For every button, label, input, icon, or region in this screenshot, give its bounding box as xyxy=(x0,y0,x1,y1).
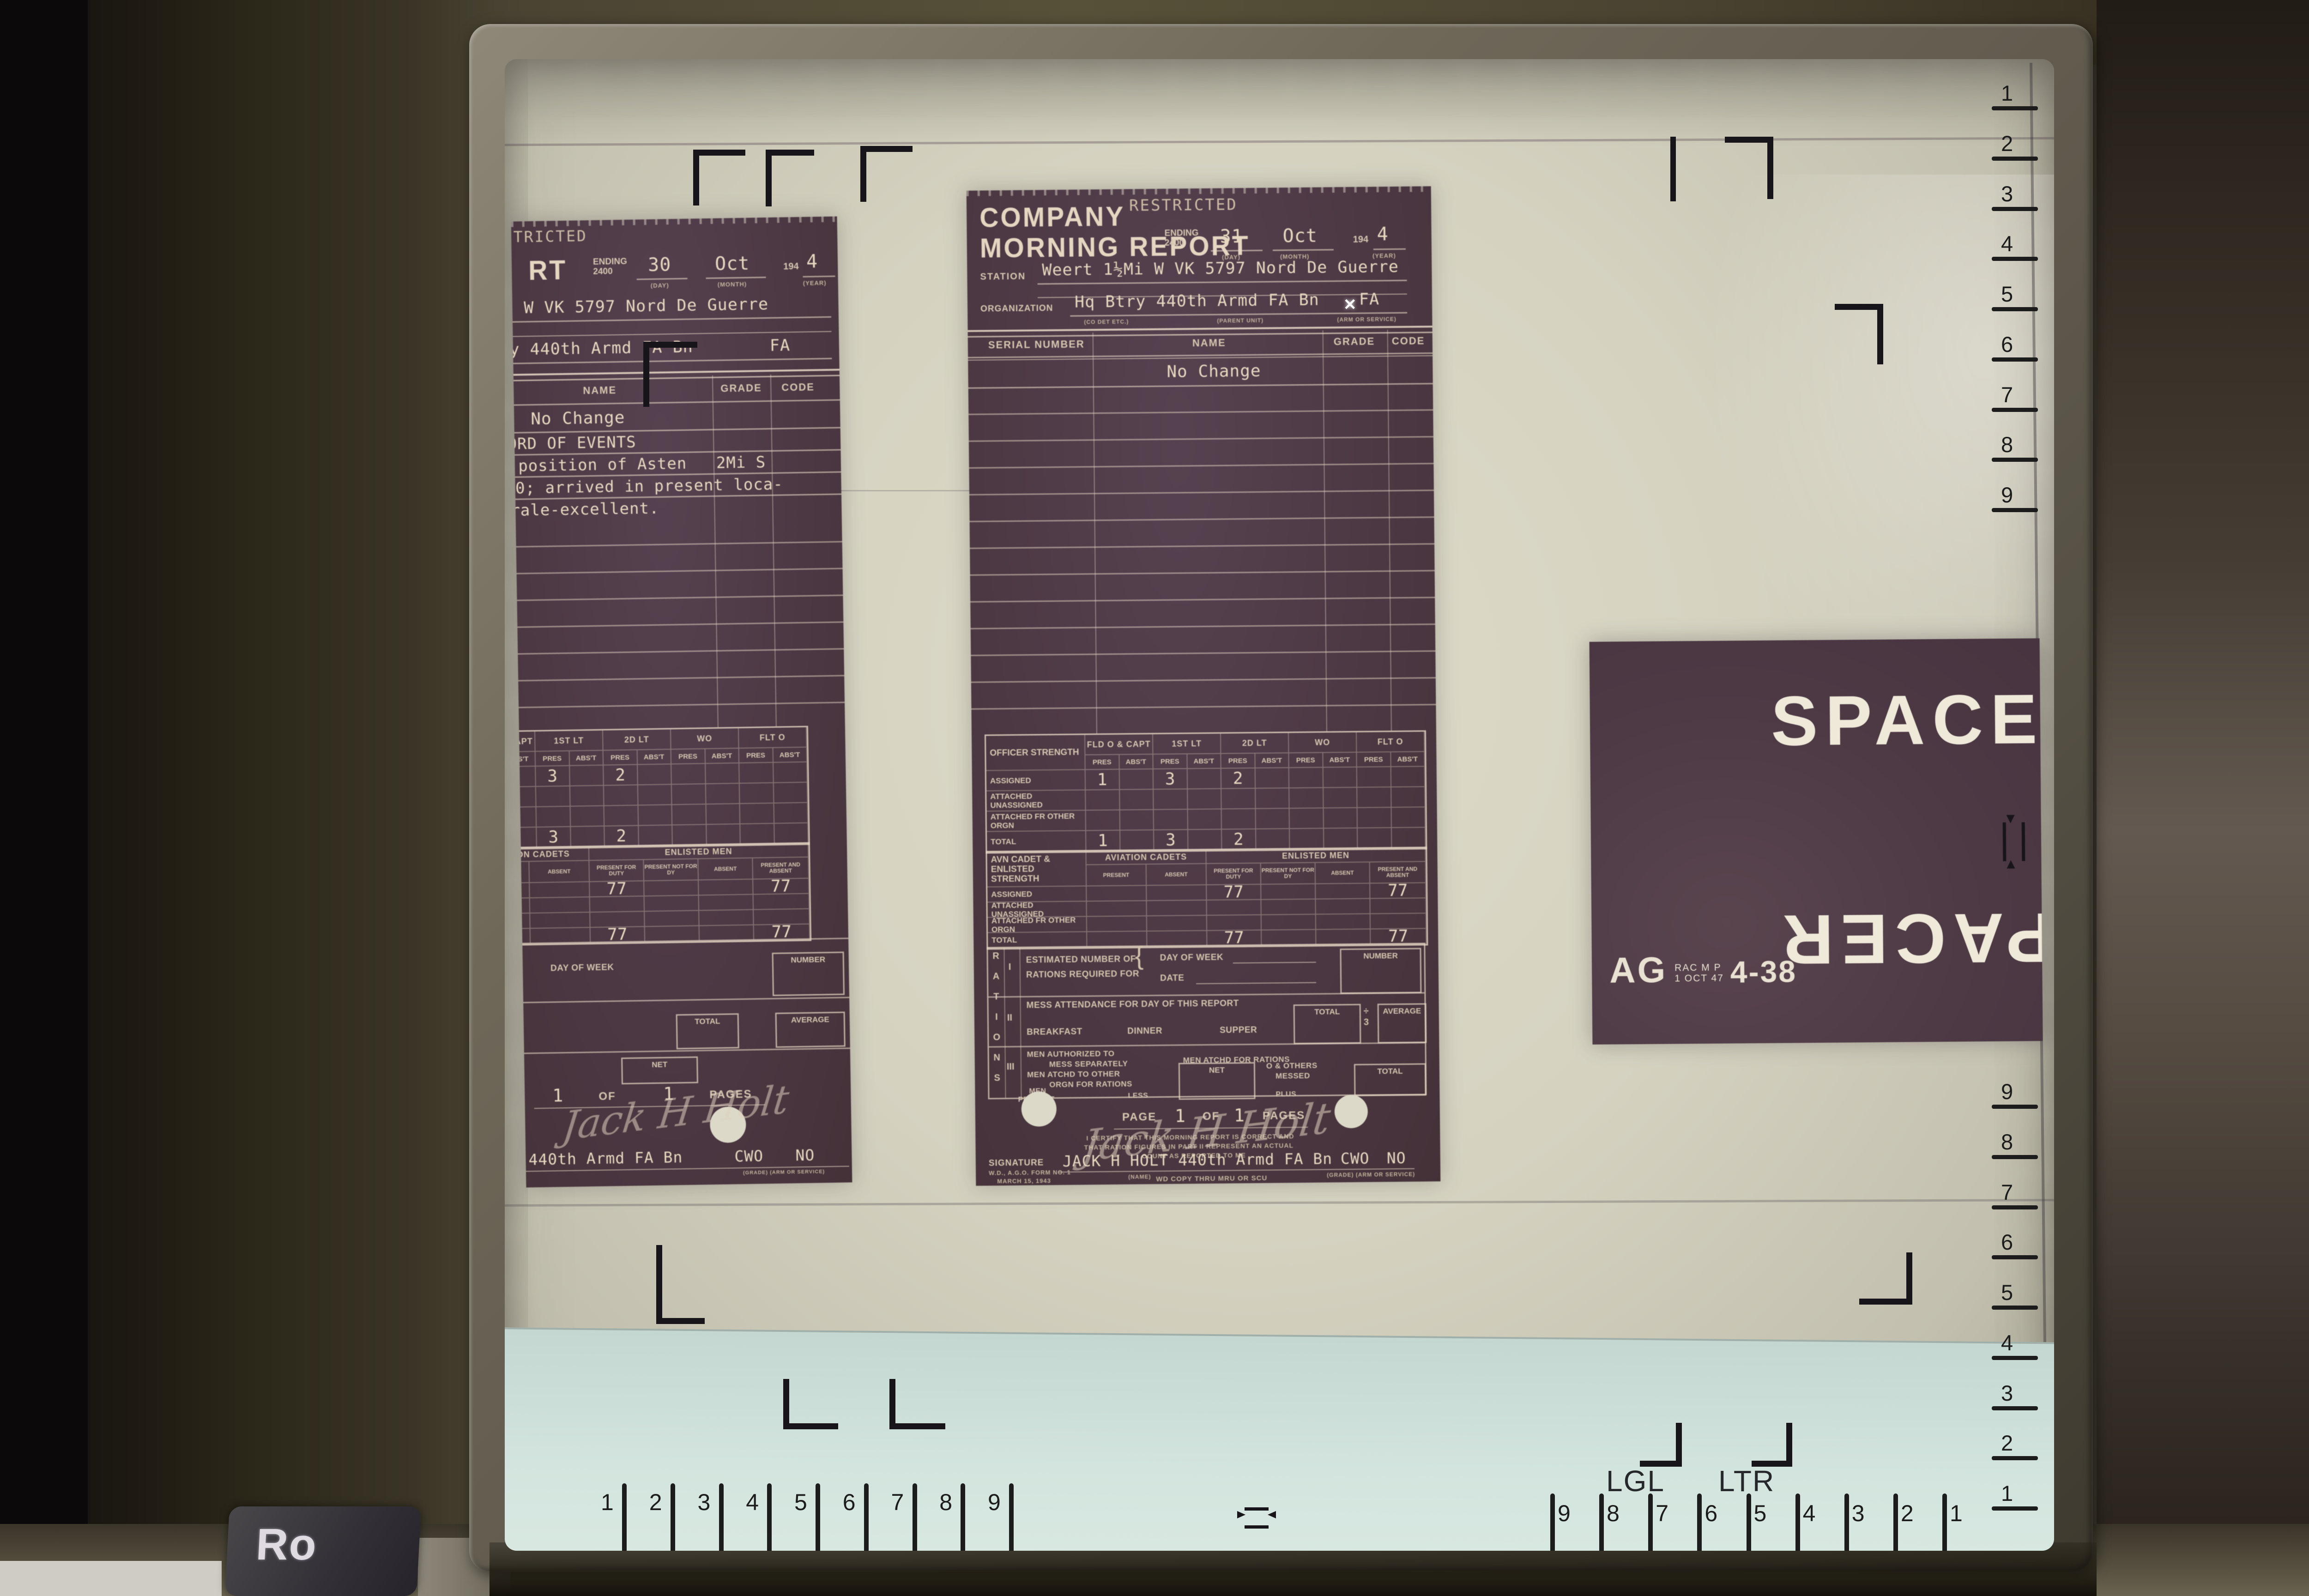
signature-fragment: 440th Armd FA Bn xyxy=(528,1148,683,1168)
strength-cell xyxy=(639,825,673,846)
year-underline xyxy=(1373,248,1406,250)
ltr-size-label: LTR xyxy=(1718,1464,1775,1498)
code-header: CODE xyxy=(1392,335,1425,347)
corner-mark-top-2 xyxy=(766,150,814,206)
strength-cell: WO xyxy=(1289,732,1357,753)
strength-cell: 2 xyxy=(604,765,638,786)
strength-cell: PRES xyxy=(1289,753,1323,768)
strength-cell: OFFICER STRENGTH xyxy=(986,735,1086,771)
roman-2: II xyxy=(1007,1013,1012,1023)
rations-letter: R xyxy=(988,951,1003,971)
strength-cell xyxy=(1087,886,1147,901)
strength-cell: 77 xyxy=(1207,885,1261,901)
rations-i-day: DAY OF WEEK xyxy=(1160,953,1224,963)
strength-cell: 77 xyxy=(1207,931,1262,946)
strip-mark-left-2 xyxy=(889,1379,945,1429)
ag-prefix: AG xyxy=(1609,952,1668,988)
strength-cell: 3 xyxy=(1154,769,1188,790)
strength-cell xyxy=(699,910,754,926)
strength-cell: ABS'T xyxy=(569,751,604,766)
ruler-number: 7 xyxy=(1995,1179,2042,1213)
strength-cell: ABS'T xyxy=(1119,755,1154,770)
ruler-number: 6 xyxy=(1995,332,2042,365)
strength-cell xyxy=(740,824,774,845)
strength-cell: PRES xyxy=(1153,754,1187,769)
space-word: SPACE xyxy=(1771,679,2043,762)
ruler-right-bottom: 987654321 xyxy=(1995,1079,2042,1514)
ruler-number: 3 xyxy=(698,1489,726,1551)
strength-cell xyxy=(1188,830,1222,851)
rations-line-b xyxy=(523,997,849,1003)
month-underline xyxy=(706,277,766,279)
classification-stamp: RESTRICTED xyxy=(511,227,587,247)
station-value: Weert 1½Mi W VK 5797 Nord De Guerre xyxy=(511,295,769,319)
ruler-number: 7 xyxy=(1656,1500,1681,1551)
roman-1: I xyxy=(1009,962,1011,973)
ruler-number: 1 xyxy=(1950,1500,1976,1551)
ruler-number: 3 xyxy=(1995,181,2042,214)
strength-cell: AVIATION CADETS xyxy=(1086,850,1206,865)
strength-cell xyxy=(1290,809,1324,829)
strength-cell: 77 xyxy=(753,879,810,895)
signature-label: SIGNATURE xyxy=(989,1158,1044,1168)
machine-bottom-surface xyxy=(0,1561,222,1596)
ruler-number: 4 xyxy=(1995,231,2042,264)
strength-cell: PRESENT xyxy=(1087,864,1147,886)
day-value: 31 xyxy=(1220,226,1243,247)
strength-cell xyxy=(774,823,809,844)
strength-cell: ABS'T xyxy=(773,748,807,763)
strength-cell xyxy=(1119,769,1154,790)
strength-cell: PRES xyxy=(1221,754,1255,769)
strength-cell: AVN CADET & ENLISTED STRENGTH xyxy=(987,851,1087,887)
strength-cell: FLT O xyxy=(1357,731,1425,752)
ending-label: ENDING 2400 xyxy=(593,257,628,277)
iii-oothers2: MESSED xyxy=(1275,1071,1310,1082)
ruler-number: 1 xyxy=(601,1489,629,1551)
arm-value: FA xyxy=(1359,290,1380,308)
form-line-1: W.D., A.G.O. FORM NO. 1 xyxy=(989,1169,1071,1177)
strength-cell: ABS'T xyxy=(637,750,671,765)
punch-hole-left xyxy=(1021,1091,1057,1127)
strength-cell xyxy=(1324,828,1358,849)
org-caption-3: (ARM OR SERVICE) xyxy=(1337,316,1396,323)
officer-strength-table: OFFICER STRENGTHFLD O & CAPT1ST LT2D LTW… xyxy=(511,726,810,852)
strength-cell xyxy=(1120,810,1154,831)
machine-right-panel xyxy=(2097,0,2309,1596)
strength-cell xyxy=(672,784,706,805)
grade-caption: (GRADE) (ARM OR SERVICE) xyxy=(743,1169,825,1176)
rations-letter: S xyxy=(989,1073,1005,1093)
strength-cell: ABSENT xyxy=(1147,864,1207,886)
div-three: 3 xyxy=(1364,1017,1369,1028)
strength-cell: PRES xyxy=(671,749,706,764)
strength-cell xyxy=(774,762,808,783)
month-value: Oct xyxy=(715,253,750,275)
strength-cell xyxy=(1221,789,1256,810)
year-prefix: 194 xyxy=(1353,235,1369,245)
name-header: NAME xyxy=(583,384,617,397)
strength-cell xyxy=(706,804,740,825)
strength-cell: ABS'T xyxy=(1187,754,1221,769)
event-line-3: Morale-excellent. xyxy=(511,499,659,520)
strength-cell xyxy=(740,783,774,804)
strength-cell xyxy=(1316,930,1371,945)
screen-top-shade xyxy=(505,59,2054,147)
ruler-number: 4 xyxy=(746,1489,774,1551)
rations-number-box: NUMBER xyxy=(1340,948,1421,994)
tick-mark-top-right xyxy=(1670,137,1676,201)
rations-ii-meal2: DINNER xyxy=(1127,1026,1162,1037)
strength-cell xyxy=(739,763,774,784)
day-value: 30 xyxy=(648,254,671,276)
rations-letter: I xyxy=(989,1012,1004,1032)
strength-cell xyxy=(590,912,645,928)
rations-letter: T xyxy=(988,991,1004,1012)
year-prefix: 194 xyxy=(783,261,799,272)
strength-cell xyxy=(1154,810,1188,830)
ration-net-box: NET xyxy=(621,1057,698,1085)
strength-cell: FLD O & CAPT xyxy=(1085,734,1153,755)
ration-day-label: DAY OF WEEK xyxy=(550,962,614,973)
strength-cell xyxy=(638,805,672,826)
year-underline xyxy=(803,276,835,278)
strength-cell xyxy=(1086,810,1120,831)
strength-cell xyxy=(1316,914,1371,930)
strength-cell xyxy=(1316,884,1370,900)
ruler-number: 2 xyxy=(1995,131,2042,164)
rations-i-date: DATE xyxy=(1160,973,1185,984)
strength-cell xyxy=(774,783,808,804)
corner-mark-top-3 xyxy=(860,146,913,202)
strength-cell: PRESENT NOT FOR DY xyxy=(644,859,699,881)
strength-cell xyxy=(1289,788,1324,809)
iii-line2b: ORGN FOR RATIONS xyxy=(1049,1079,1132,1090)
brand-label: Ro xyxy=(255,1519,319,1570)
strength-cell xyxy=(1391,787,1426,808)
strength-cell xyxy=(1261,884,1316,900)
ruler-bottom-left: 123456789 xyxy=(601,1489,1016,1551)
strength-cell xyxy=(1323,768,1357,788)
rations-ii-meal1: BREAKFAST xyxy=(1027,1027,1082,1038)
ruler-number: 5 xyxy=(794,1489,823,1551)
strength-cell xyxy=(604,806,639,827)
strength-cell: ASSIGNED xyxy=(987,886,1087,902)
ruler-number: 8 xyxy=(1995,432,2042,465)
morning-report-center: COMPANY MORNING REPORT RESTRICTED ENDING… xyxy=(967,186,1441,1186)
name-caption: (NAME) xyxy=(1128,1173,1151,1180)
strength-cell xyxy=(706,763,740,784)
strength-cell xyxy=(1147,901,1207,916)
strength-cell xyxy=(1187,769,1221,790)
enlisted-strength-table: AVN CADET & ENLISTED STRENGTHAVIATION CA… xyxy=(511,842,812,948)
strength-cell: ENLISTED MEN xyxy=(1206,848,1426,864)
strength-cell xyxy=(699,895,754,911)
strength-cell xyxy=(1391,767,1425,787)
strength-cell: ABS'T xyxy=(1255,753,1289,768)
ending-label: ENDING 2400 xyxy=(1164,228,1198,248)
strength-cell: 1 xyxy=(1086,831,1120,852)
strength-cell: ATTACHED FR OTHER ORGN xyxy=(987,810,1086,832)
strength-cell xyxy=(1207,900,1261,916)
strength-cell xyxy=(530,882,590,898)
strength-cell xyxy=(671,764,706,785)
strength-cell: 2D LT xyxy=(1221,733,1289,754)
officer-strength-table: OFFICER STRENGTHFLD O & CAPT1ST LT2D LTW… xyxy=(985,730,1427,853)
events-title: RECORD OF EVENTS xyxy=(511,433,636,453)
rations-total-box: TOTAL xyxy=(1294,1004,1361,1044)
strength-cell xyxy=(511,807,537,828)
iii-oothers1: O & OTHERS xyxy=(1266,1061,1318,1071)
signature-value: JACK H HOLT 440th Armd FA Bn xyxy=(1063,1149,1333,1170)
page-value: 1 xyxy=(552,1085,564,1106)
strength-cell xyxy=(1222,809,1256,830)
i-date-line xyxy=(1196,982,1316,984)
ruler-number: 8 xyxy=(1607,1500,1632,1551)
iii-total-box: TOTAL xyxy=(1354,1063,1427,1096)
event-line-1: Left position of Asten xyxy=(511,454,687,476)
station-underline xyxy=(513,316,831,323)
ruler-number: 7 xyxy=(891,1489,920,1551)
form-footer: WD COPY THRU MRU OR SCU xyxy=(1156,1174,1267,1183)
rations-section: RATIONS I II III ESTIMATED NUMBER OF RAT… xyxy=(986,943,1427,1099)
strength-cell xyxy=(740,804,774,824)
strength-cell: PRES xyxy=(1357,752,1391,768)
organization-value: Hq Btry 440th Armd FA Bn xyxy=(1075,291,1319,312)
empty-roster-rows xyxy=(968,384,1436,735)
iii-net-box: NET xyxy=(1179,1062,1256,1100)
strength-cell xyxy=(570,786,604,807)
strength-cell xyxy=(1324,808,1358,829)
year-value: 4 xyxy=(1377,224,1389,245)
strength-cell xyxy=(1256,788,1290,809)
strength-cell: PRES xyxy=(739,748,774,763)
strength-cell: ATTACHED FR OTHER ORGN xyxy=(988,917,1087,933)
microfilm-reader-photo: Ro RESTRICTED RT ENDING 2400 30 Oct 194 … xyxy=(0,0,2309,1596)
strength-cell xyxy=(1391,828,1426,848)
rations-i-label2: RATIONS REQUIRED FOR xyxy=(1026,969,1139,980)
strength-cell xyxy=(1357,787,1391,808)
strength-cell xyxy=(638,764,672,785)
pointer-cross-icon: ✕ xyxy=(1343,296,1357,314)
strength-cell: ATTACHED UNASSIGNED xyxy=(986,790,1086,811)
strength-cell: 77 xyxy=(590,881,645,897)
strength-cell xyxy=(1086,790,1120,811)
strength-cell xyxy=(754,894,810,910)
strength-cell xyxy=(1324,788,1358,809)
strength-cell xyxy=(536,786,570,807)
day-underline xyxy=(1211,250,1263,252)
rations-letter: N xyxy=(989,1052,1005,1073)
center-registration-icon xyxy=(1245,1507,1269,1529)
machine-left-panel xyxy=(88,0,494,1596)
strength-cell xyxy=(537,807,571,828)
arm-value: FA xyxy=(770,336,791,355)
strength-cell: PRESENT FOR DUTY xyxy=(589,860,644,882)
ruler-number: 1 xyxy=(1995,80,2042,114)
roster-entry: No Change xyxy=(1167,362,1261,381)
ending-time: 2400 xyxy=(593,266,613,277)
ltr-bracket xyxy=(1752,1423,1792,1467)
month-caption: (MONTH) xyxy=(718,281,747,288)
strength-cell: 3 xyxy=(537,827,571,848)
strength-cell: PRES xyxy=(1085,755,1119,770)
year-value: 4 xyxy=(806,251,818,272)
strength-cell xyxy=(1120,830,1154,851)
strip-mark-left-1 xyxy=(783,1379,838,1429)
strength-cell: ABSENT xyxy=(529,861,590,883)
strength-cell: PRESENT xyxy=(511,862,530,884)
strength-cell xyxy=(570,806,604,827)
strength-cell: ABSENT xyxy=(1316,863,1370,884)
strength-cell xyxy=(1262,930,1316,946)
strength-cell: ATTACHED UNASSIGNED xyxy=(987,901,1087,918)
ration-total-box: TOTAL xyxy=(676,1013,739,1049)
strength-cell: AVIATION CADETS xyxy=(511,847,590,863)
film-edge-line-bottom xyxy=(505,1199,2054,1207)
ruler-right-top: 123456789 xyxy=(1995,80,2042,515)
month-underline xyxy=(1273,249,1334,251)
event-line-1-right: 2Mi S xyxy=(716,453,766,472)
strength-cell xyxy=(1391,807,1426,828)
ruler-number: 9 xyxy=(988,1489,1016,1551)
strength-cell: ASSIGNED xyxy=(986,770,1086,791)
org-caption-2: (PARENT UNIT) xyxy=(1217,317,1263,324)
lgl-bracket xyxy=(1640,1423,1682,1467)
day-underline xyxy=(637,278,688,280)
strength-cell xyxy=(570,766,604,786)
strength-cell xyxy=(754,909,810,925)
rations-average-box: AVERAGE xyxy=(1378,1003,1427,1043)
ration-average-box: AVERAGE xyxy=(775,1012,846,1048)
handwritten-signature: Jack H Holt xyxy=(560,1076,792,1149)
report-title-fragment: RT xyxy=(528,254,568,286)
ruler-number: 5 xyxy=(1995,281,2042,314)
roster-entry: No Change xyxy=(531,408,625,429)
classification-stamp: RESTRICTED xyxy=(1129,195,1238,215)
rations-i-brace: { xyxy=(1135,950,1143,961)
strength-cell xyxy=(707,824,741,845)
rations-div: ÷ 3 xyxy=(1364,1006,1369,1028)
strength-cell xyxy=(1147,885,1207,901)
pacer-word-upside-down: PACER xyxy=(1775,897,2043,980)
strength-cell xyxy=(511,828,537,848)
grade-caption: (GRADE) (ARM OR SERVICE) xyxy=(1327,1171,1415,1179)
brand-badge: Ro xyxy=(225,1506,421,1596)
strength-cell xyxy=(672,825,707,846)
strength-cell xyxy=(1207,915,1262,931)
strength-cell xyxy=(1120,790,1154,810)
ruler-number: 2 xyxy=(649,1489,678,1551)
ruler-number: 6 xyxy=(1995,1229,2042,1263)
ruler-number: 9 xyxy=(1995,1079,2042,1112)
strength-cell xyxy=(644,880,699,896)
station-underline xyxy=(1038,280,1407,285)
strength-cell: ABS'T xyxy=(1391,752,1425,767)
strength-cell: 77 xyxy=(1370,883,1426,899)
strength-cell: ABS'T xyxy=(511,752,536,767)
strength-cell: PRESENT AND ABSENT xyxy=(1370,862,1426,883)
ruler-number: 9 xyxy=(1558,1500,1584,1551)
strength-cell: 2 xyxy=(604,826,639,846)
grade-header: GRADE xyxy=(1334,335,1375,348)
ruler-number: 9 xyxy=(1995,482,2042,515)
code-header: CODE xyxy=(781,381,815,393)
strength-cell: PRES xyxy=(536,751,570,767)
strength-cell: 1ST LT xyxy=(535,731,604,752)
strength-cell xyxy=(1188,789,1222,810)
grade-header: GRADE xyxy=(720,382,762,394)
month-value: Oct xyxy=(1282,225,1318,247)
strength-cell: 2 xyxy=(1222,829,1256,850)
year-caption: (YEAR) xyxy=(803,279,827,287)
rations-i-label1: ESTIMATED NUMBER OF xyxy=(1026,954,1136,965)
i-day-line xyxy=(1233,962,1316,964)
roman-3: III xyxy=(1007,1062,1015,1072)
ruler-number: 8 xyxy=(1995,1129,2042,1162)
strength-cell xyxy=(590,896,645,913)
corner-mark-top-right-2 xyxy=(1835,304,1883,364)
strength-cell: 3 xyxy=(536,766,570,787)
ruler-number: 6 xyxy=(843,1489,871,1551)
strength-cell xyxy=(638,785,672,805)
strength-cell xyxy=(530,897,591,913)
ag-small-1: RAC M P xyxy=(1674,962,1722,973)
strength-cell xyxy=(1147,931,1207,947)
ruler-number: 2 xyxy=(1995,1430,2042,1463)
punch-hole-right xyxy=(1335,1095,1368,1129)
ag-small-2: 1 OCT 47 xyxy=(1674,973,1724,984)
strength-cell xyxy=(645,895,700,912)
strength-cell xyxy=(604,786,638,806)
strength-cell xyxy=(645,911,700,927)
space-pacer-target-card: SPACE PACER AG RAC M P 1 OCT 47 4-38 xyxy=(1590,638,2043,1045)
ruler-number: 4 xyxy=(1995,1330,2042,1363)
iii-line1a: MEN AUTHORIZED TO xyxy=(1027,1049,1115,1060)
projection-screen: RESTRICTED RT ENDING 2400 30 Oct 194 4 (… xyxy=(505,59,2054,1551)
strength-cell: TOTAL xyxy=(987,831,1086,852)
div-sign: ÷ xyxy=(1364,1006,1369,1016)
strength-cell: 77 xyxy=(1371,929,1427,944)
strength-cell xyxy=(1357,767,1391,788)
strength-cell xyxy=(1358,808,1392,828)
machine-left-shadow xyxy=(0,0,88,1596)
ag-number: 4-38 xyxy=(1730,956,1797,987)
strength-cell xyxy=(1371,913,1427,929)
strength-cell xyxy=(1256,809,1290,829)
rations-letter: A xyxy=(988,971,1004,991)
station-value: Weert 1½Mi W VK 5797 Nord De Guerre xyxy=(1042,258,1399,279)
rations-rule-i xyxy=(988,992,1424,997)
iii-line2a: MEN ATCHD TO OTHER xyxy=(1027,1069,1120,1080)
strength-cell: PRESENT AND ABSENT xyxy=(753,858,809,880)
corner-mark-top-right-1 xyxy=(1725,137,1773,199)
strength-cell xyxy=(1289,768,1324,789)
strength-cell: WO xyxy=(671,728,739,750)
rations-rule-ii xyxy=(989,1042,1425,1047)
ruler-number: 6 xyxy=(1705,1500,1730,1551)
strength-cell xyxy=(1188,810,1222,830)
strength-cell xyxy=(1370,898,1426,914)
enlisted-strength-table: AVN CADET & ENLISTED STRENGTHAVIATION CA… xyxy=(985,846,1428,949)
signature-grade: CWO xyxy=(734,1147,763,1165)
signature-arm: NO xyxy=(1387,1149,1406,1167)
strength-cell xyxy=(1147,916,1207,931)
strength-cell: 2D LT xyxy=(603,729,671,750)
rations-letter: O xyxy=(989,1032,1004,1052)
empty-roster-rows xyxy=(516,516,845,731)
strength-cell: 2 xyxy=(1221,768,1256,789)
